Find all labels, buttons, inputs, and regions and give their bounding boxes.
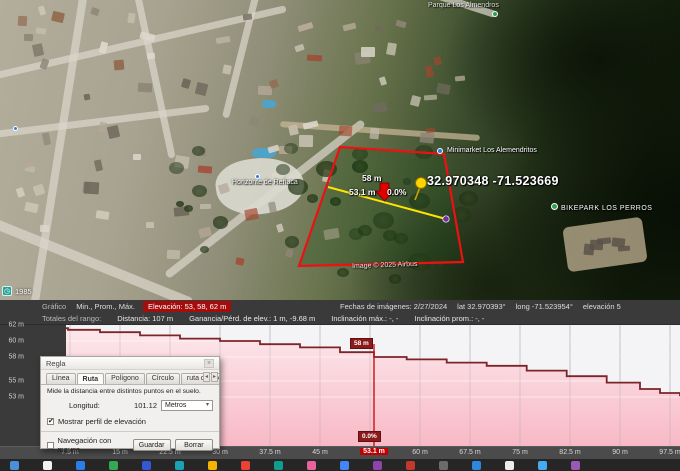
distance-total-label: Distancia: 107 m <box>117 314 173 323</box>
taskbar-app-icon[interactable] <box>505 461 514 470</box>
tab-círculo[interactable]: Círculo <box>146 373 180 384</box>
poi-icon[interactable] <box>437 148 443 154</box>
taskbar-app-icon[interactable] <box>538 461 547 470</box>
poi-icon[interactable] <box>551 203 558 210</box>
poi-bikepark[interactable]: BIKEPARK LOS PERROS <box>561 205 652 212</box>
elevation-summary-chip: Elevación: 53, 58, 62 m <box>143 301 231 312</box>
slope-label: 0.0% <box>387 187 406 197</box>
taskbar-app-icon[interactable] <box>142 461 151 470</box>
marker-slope-badge: 0.0% <box>358 431 381 442</box>
path-endpoint-marker[interactable] <box>443 216 449 222</box>
y-tick-label: 62 m <box>8 322 24 329</box>
cursor-elev-label: elevación 5 <box>583 302 621 311</box>
dialog-titlebar[interactable]: Regla × <box>41 357 219 370</box>
history-year-label: 1985 <box>15 287 32 296</box>
x-tick-label: 45 m <box>312 449 328 456</box>
taskbar-app-icon[interactable] <box>208 461 217 470</box>
save-button[interactable]: Guardar <box>133 439 171 451</box>
taskbar-app-icon[interactable] <box>373 461 382 470</box>
taskbar-app-icon[interactable] <box>274 461 283 470</box>
tab-ruta[interactable]: Ruta <box>77 373 105 385</box>
taskbar-app-icon[interactable] <box>439 461 448 470</box>
taskbar-app-icon[interactable] <box>241 461 250 470</box>
taskbar-app-icon[interactable] <box>175 461 184 470</box>
taskbar-app-icon[interactable] <box>307 461 316 470</box>
tab-línea[interactable]: Línea <box>46 373 76 384</box>
avg-slope-label: Inclinación prom.: -, - <box>414 314 484 323</box>
x-tick-label: 75 m <box>512 449 528 456</box>
x-tick-label: 82.5 m <box>559 449 580 456</box>
range-totals-bar: Totales del rango: Distancia: 107 m Gana… <box>0 312 680 325</box>
y-tick-label: 55 m <box>8 378 24 385</box>
max-slope-label: Inclinación máx.: -, - <box>331 314 398 323</box>
y-tick-label: 58 m <box>8 354 24 361</box>
elevation-label: 58 m <box>362 173 381 183</box>
pin-coordinates-label: 32.970348 -71.523669 <box>427 174 559 188</box>
length-label: Longitud: <box>69 401 100 410</box>
show-profile-checkbox[interactable]: ✔ <box>47 418 54 425</box>
tab-polígono[interactable]: Polígono <box>105 373 145 384</box>
elev-gain-label: Ganancia/Pérd. de elev.: 1 m, -9.68 m <box>189 314 315 323</box>
dialog-tab-bar: LíneaRutaPolígonoCírculoruta de acceso e… <box>41 370 219 385</box>
distance-label: 53.1 m <box>349 187 375 197</box>
taskbar-app-icon[interactable] <box>340 461 349 470</box>
close-icon[interactable]: × <box>204 359 214 368</box>
clock-icon[interactable]: ◷ <box>2 286 12 296</box>
google-earth-window: 32.970348 -71.523669 58 m 53.1 m 0.0% Mi… <box>0 0 680 471</box>
unit-value: Metros <box>165 402 186 409</box>
map-view[interactable]: 32.970348 -71.523669 58 m 53.1 m 0.0% Mi… <box>0 0 680 300</box>
ruler-dialog[interactable]: Regla × LíneaRutaPolígonoCírculoruta de … <box>40 356 220 449</box>
taskbar-app-icon[interactable] <box>10 461 19 470</box>
tab-scroll-right-icon[interactable]: ▸ <box>211 372 218 382</box>
profile-status-bar: Gráfico Min., Prom., Máx. Elevación: 53,… <box>0 300 680 312</box>
cursor-lat-label: lat 32.970393° <box>457 302 505 311</box>
taskbar-app-icon[interactable] <box>43 461 52 470</box>
x-tick-label: 90 m <box>612 449 628 456</box>
taskbar-app-icon[interactable] <box>571 461 580 470</box>
length-value: 101.12 <box>134 401 157 410</box>
dialog-body: Mide la distancia entre distintos puntos… <box>41 385 219 426</box>
dialog-description: Mide la distancia entre distintos puntos… <box>47 388 213 395</box>
y-tick-label: 53 m <box>8 394 24 401</box>
taskbar-app-icon[interactable] <box>406 461 415 470</box>
chevron-down-icon: ▾ <box>203 401 212 410</box>
x-tick-label: 67.5 m <box>459 449 480 456</box>
pushpin-icon[interactable] <box>416 178 427 189</box>
x-tick-label: 97.5 m <box>659 449 680 456</box>
show-profile-label: Mostrar perfil de elevación <box>58 417 146 426</box>
poi-icon[interactable] <box>492 11 498 17</box>
cursor-long-label: long -71.523954° <box>516 302 573 311</box>
dialog-footer: Navegación con mouse Guardar Borrar <box>41 431 219 454</box>
mouse-nav-label: Navegación con mouse <box>58 436 129 454</box>
poi-parque[interactable]: Parque Los Almendros <box>428 2 499 9</box>
marker-distance-tick: 53.1 m <box>360 448 388 455</box>
taskbar-app-icon[interactable] <box>472 461 481 470</box>
parcel-polygon[interactable] <box>299 147 463 266</box>
poi-horizonte[interactable]: Horizonte de Reñaca <box>232 179 298 186</box>
unit-dropdown[interactable]: Metros ▾ <box>161 400 213 411</box>
imagery-date-label: Fechas de imágenes: 2/27/2024 <box>340 302 447 311</box>
clear-button[interactable]: Borrar <box>175 439 213 451</box>
grafico-label: Gráfico <box>42 302 66 311</box>
min-prom-max-label: Min., Prom., Máx. <box>76 302 135 311</box>
poi-icon[interactable] <box>13 126 18 131</box>
taskbar-app-icon[interactable] <box>76 461 85 470</box>
y-tick-label: 60 m <box>8 338 24 345</box>
taskbar-app-icon[interactable] <box>109 461 118 470</box>
totals-label: Totales del rango: <box>42 314 101 323</box>
mouse-nav-checkbox[interactable] <box>47 442 54 449</box>
map-overlay <box>0 0 680 300</box>
x-tick-label: 60 m <box>412 449 428 456</box>
historical-imagery-chip[interactable]: ◷ 1985 <box>2 286 32 296</box>
tab-scroll-left-icon[interactable]: ◂ <box>203 372 210 382</box>
dialog-title: Regla <box>46 359 66 368</box>
windows-taskbar[interactable] <box>0 459 680 471</box>
x-tick-label: 37.5 m <box>259 449 280 456</box>
imagery-status-bar: Fechas de imágenes: 2/27/2024 lat 32.970… <box>340 302 680 311</box>
marker-elevation-badge: 58 m <box>350 338 373 349</box>
poi-minimarket[interactable]: Minimarket Los Alemendritos <box>447 147 537 154</box>
